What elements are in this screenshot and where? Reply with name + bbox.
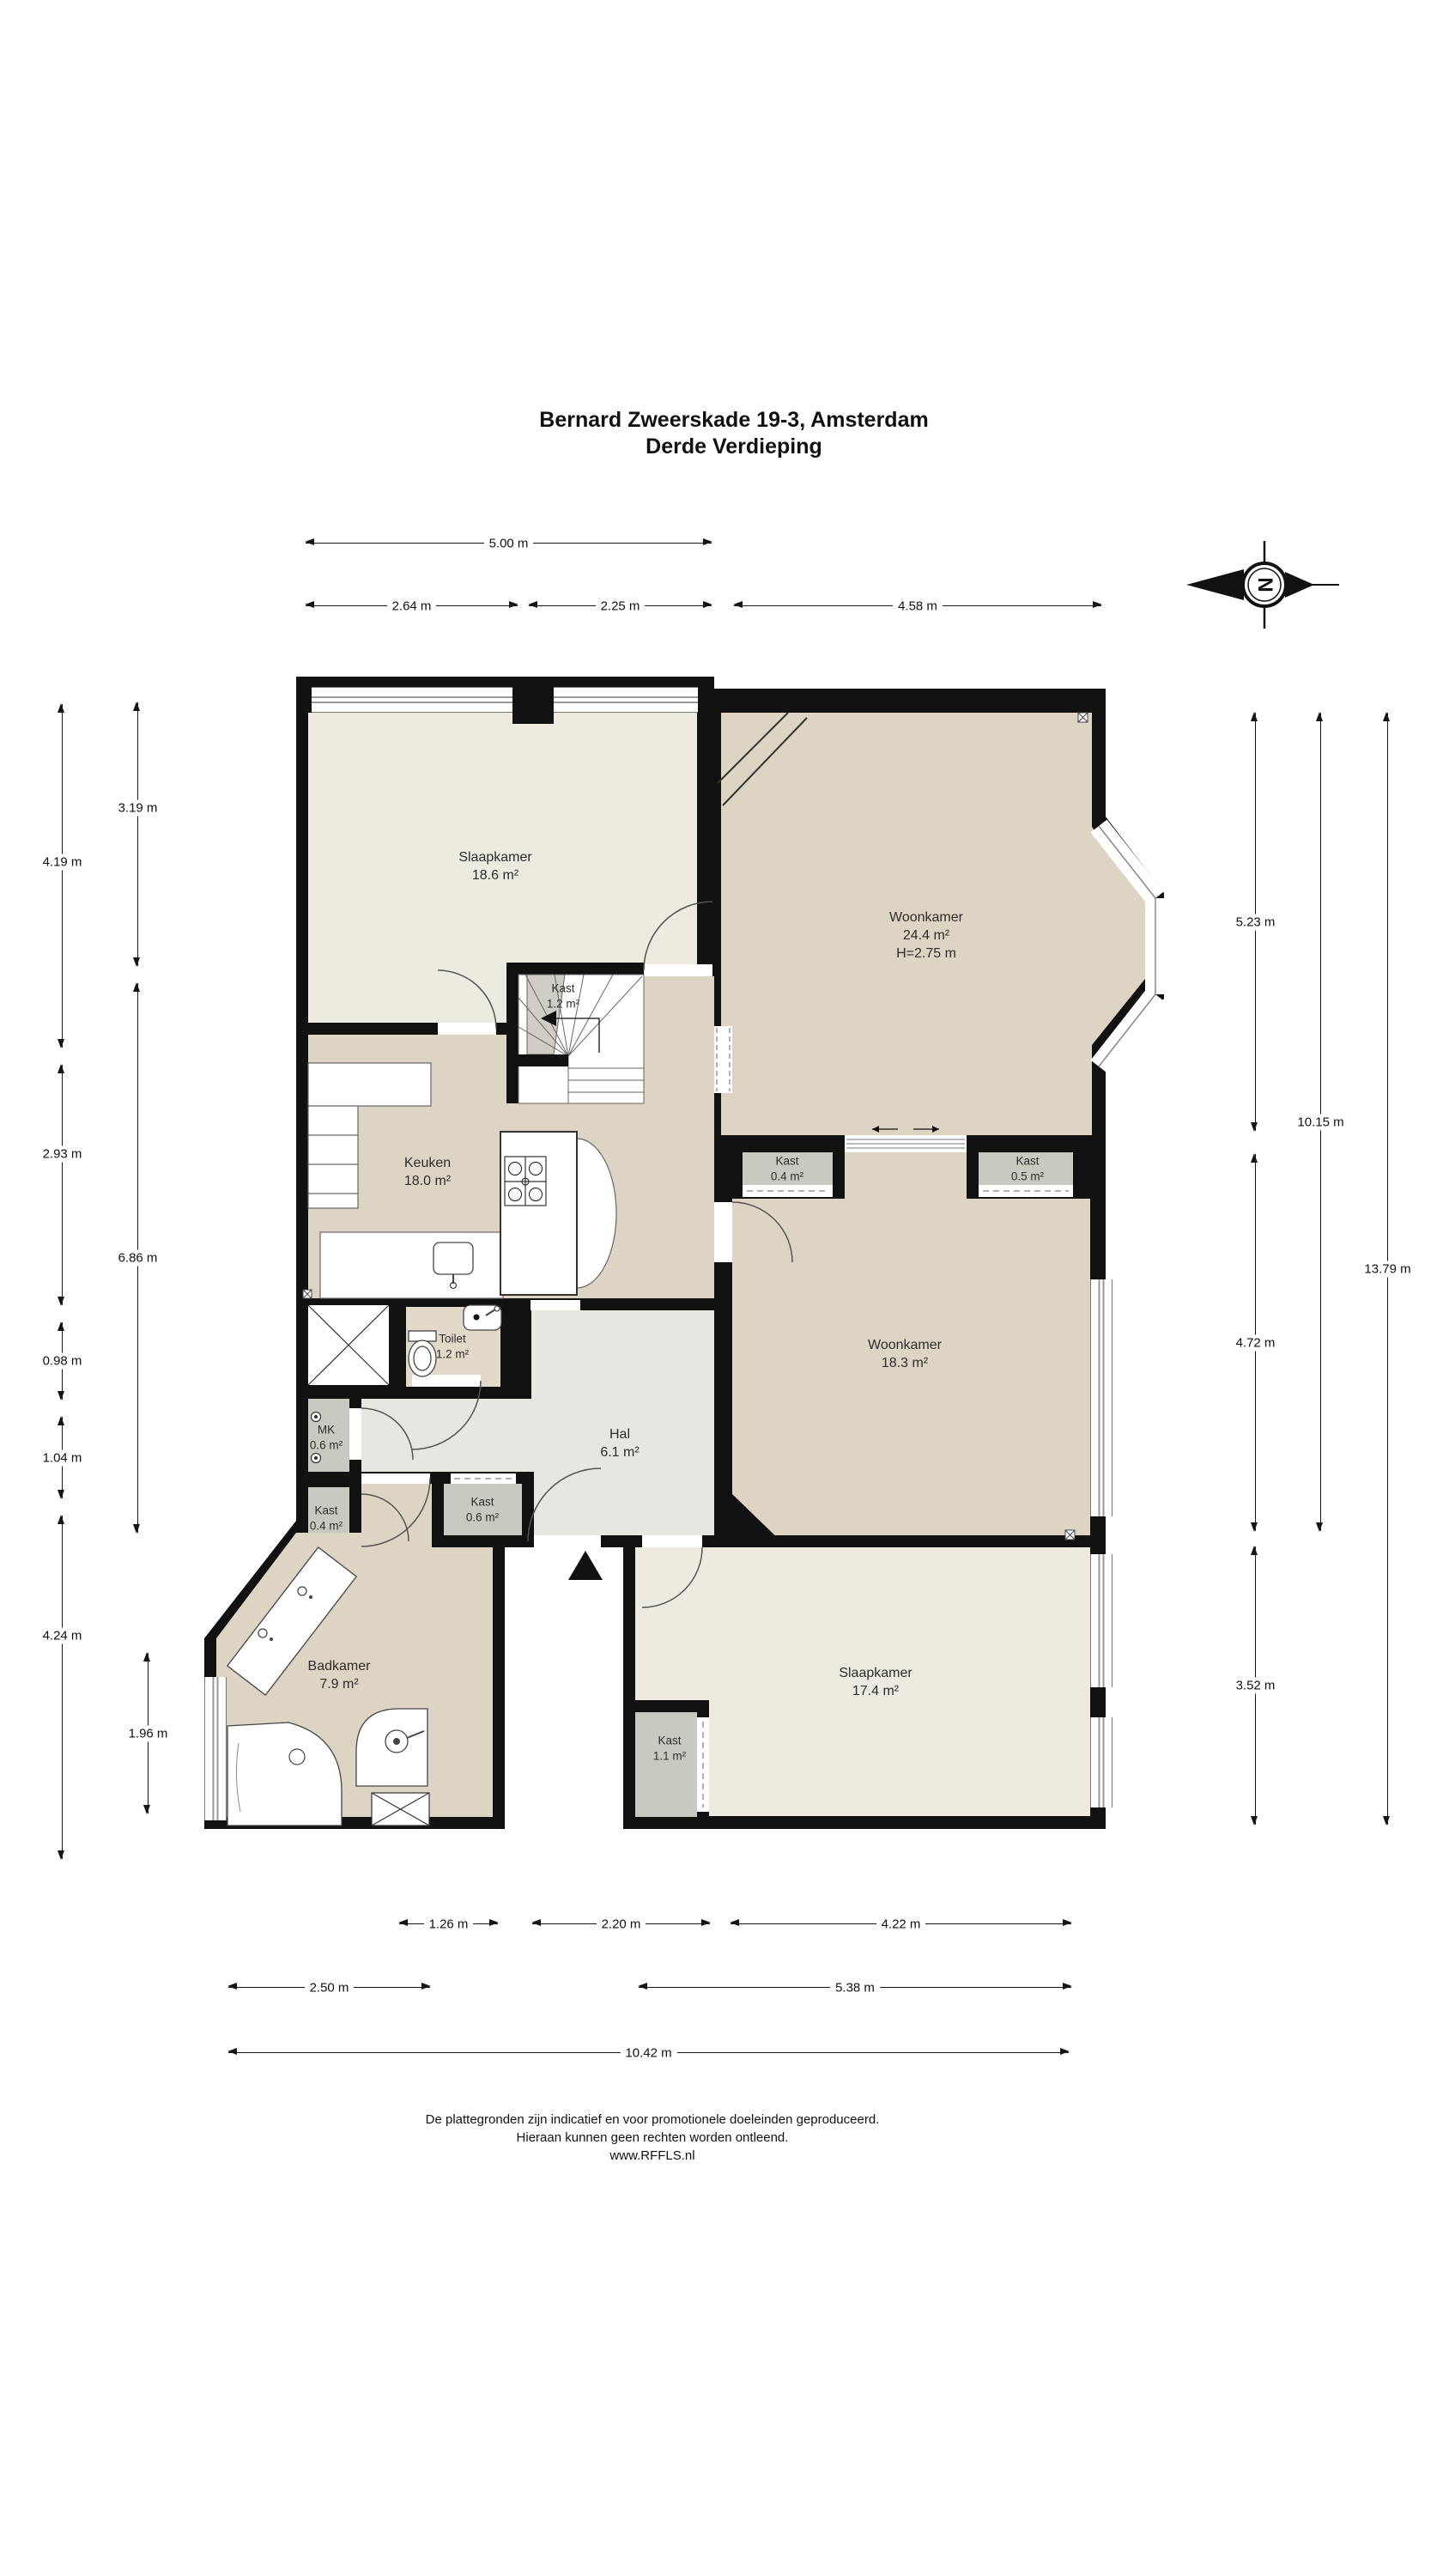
door-opening [642, 1535, 702, 1547]
room-label-keuken: Keuken18.0 m² [404, 1155, 451, 1191]
dim-bottom-5: 10.42 m [228, 2052, 1069, 2053]
door-opening [530, 1300, 580, 1310]
north-letter: N [1252, 577, 1276, 592]
room-label-kast-05: Kast0.5 m² [1011, 1153, 1044, 1183]
dim-left-6: 6.86 m [137, 983, 138, 1533]
dim-left-2: 0.98 m [62, 1322, 63, 1400]
room-label-slaapkamer-1: Slaapkamer18.6 m² [458, 849, 531, 885]
dim-left-7: 1.96 m [148, 1653, 149, 1814]
dim-left-3: 1.04 m [62, 1417, 63, 1498]
room-label-mk: MK0.6 m² [310, 1422, 343, 1452]
disclaimer-line-2: Hieraan kunnen geen rechten worden ontle… [426, 2129, 880, 2147]
dim-bottom-4: 5.38 m [639, 1987, 1071, 1988]
room-hal-upper [531, 1310, 714, 1399]
room-label-kast-12: Kast1.2 m² [547, 981, 579, 1011]
dim-bottom-3: 2.50 m [228, 1987, 430, 1988]
page-title: Bernard Zweerskade 19-3, Amsterdam Derde… [539, 407, 928, 460]
entrance-arrow [568, 1551, 603, 1580]
door-opening [714, 1026, 732, 1093]
dim-right-2: 3.52 m [1255, 1546, 1256, 1825]
door-opening [349, 1408, 361, 1460]
title-address: Bernard Zweerskade 19-3, Amsterdam [539, 407, 928, 434]
door-opening [714, 1202, 732, 1262]
door-opening [438, 1023, 496, 1035]
door-opening [644, 964, 712, 976]
room-label-kast-11: Kast1.1 m² [653, 1733, 686, 1763]
corridor-floor [644, 976, 714, 1035]
disclaimer-line-1: De plattegronden zijn indicatief en voor… [426, 2111, 880, 2129]
dim-top-3: 4.58 m [734, 605, 1101, 606]
room-label-toilet: Toilet1.2 m² [436, 1331, 469, 1361]
dim-left-0: 4.19 m [62, 704, 63, 1048]
window [554, 687, 698, 713]
dim-bottom-1: 2.20 m [532, 1923, 710, 1924]
window [1090, 1554, 1113, 1687]
dim-right-0: 5.23 m [1255, 713, 1256, 1131]
room-keuken [308, 1035, 714, 1298]
wall [512, 677, 554, 724]
room-label-hal: Hal6.1 m² [600, 1426, 639, 1462]
dim-bottom-0: 1.26 m [399, 1923, 498, 1924]
dim-right-1: 4.72 m [1255, 1154, 1256, 1531]
door-opening [528, 1535, 601, 1547]
door-opening [412, 1375, 481, 1387]
dim-top-2: 2.25 m [529, 605, 712, 606]
window [204, 1677, 227, 1820]
room-label-kast-04-left: Kast0.4 m² [310, 1503, 343, 1533]
window [1090, 1279, 1113, 1516]
dim-right-3: 10.15 m [1320, 713, 1321, 1531]
room-label-woonkamer-1: Woonkamer24.4 m²H=2.75 m [889, 909, 963, 963]
shaft [308, 1305, 389, 1385]
room-label-badkamer: Badkamer7.9 m² [308, 1658, 371, 1694]
dim-top-0: 5.00 m [306, 543, 712, 544]
window [312, 687, 512, 713]
room-label-kast-04-right: Kast0.4 m² [771, 1153, 803, 1183]
dim-left-1: 2.93 m [62, 1065, 63, 1305]
dim-bottom-2: 4.22 m [731, 1923, 1071, 1924]
title-floor: Derde Verdieping [539, 434, 928, 460]
room-label-kast-06: Kast0.6 m² [466, 1494, 499, 1524]
website-url: www.RFFLS.nl [426, 2147, 880, 2165]
dim-left-4: 4.24 m [62, 1516, 63, 1859]
window [1090, 1717, 1113, 1807]
dim-right-4: 13.79 m [1387, 713, 1388, 1825]
room-label-woonkamer-2: Woonkamer18.3 m² [868, 1337, 942, 1373]
badkamer-vestibule [361, 1484, 432, 1535]
disclaimer: De plattegronden zijn indicatief en voor… [426, 2111, 880, 2165]
floorplan-page: Bernard Zweerskade 19-3, Amsterdam Derde… [0, 0, 1449, 2576]
room-label-slaapkamer-2: Slaapkamer17.4 m² [839, 1665, 912, 1701]
dim-top-1: 2.64 m [306, 605, 518, 606]
dim-left-5: 3.19 m [137, 702, 138, 966]
